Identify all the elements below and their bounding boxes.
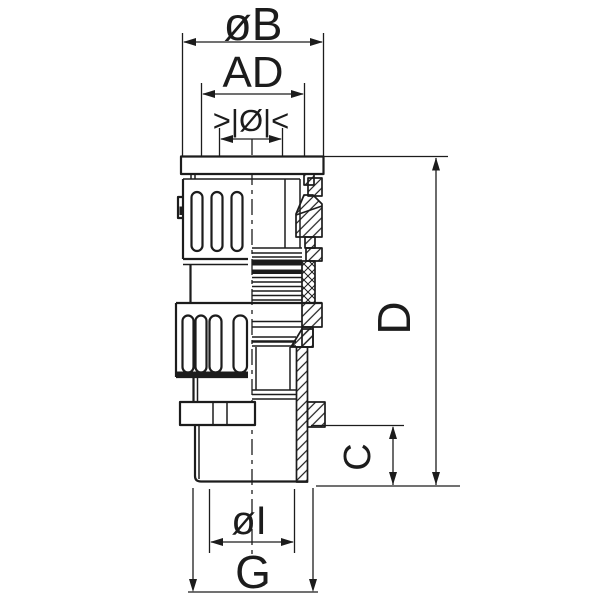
nut-rib: [183, 316, 194, 373]
thread-label: G: [235, 546, 271, 598]
clamping-range-label: >|Ø|<: [213, 103, 289, 138]
wrench-flats: [180, 402, 255, 425]
nut-rib: [210, 316, 222, 373]
sleeve-slot: [192, 192, 203, 251]
cap: [181, 157, 324, 175]
nut-rib: [234, 316, 248, 373]
technical-drawing: øB AD >|Ø|< D C: [0, 0, 600, 600]
sleeve-slot: [232, 192, 243, 251]
outer-diameter-label: AD: [222, 48, 283, 97]
connection-length-label: C: [337, 443, 379, 470]
drawing-canvas: øB AD >|Ø|< D C: [0, 0, 600, 600]
overall-length-label: D: [368, 301, 420, 334]
right-flange-step: [308, 402, 326, 427]
cap-diameter-label: øB: [224, 0, 283, 50]
nut-rib: [196, 316, 207, 373]
inner-diameter-label: øI: [231, 499, 267, 543]
sleeve-slot: [212, 192, 223, 251]
